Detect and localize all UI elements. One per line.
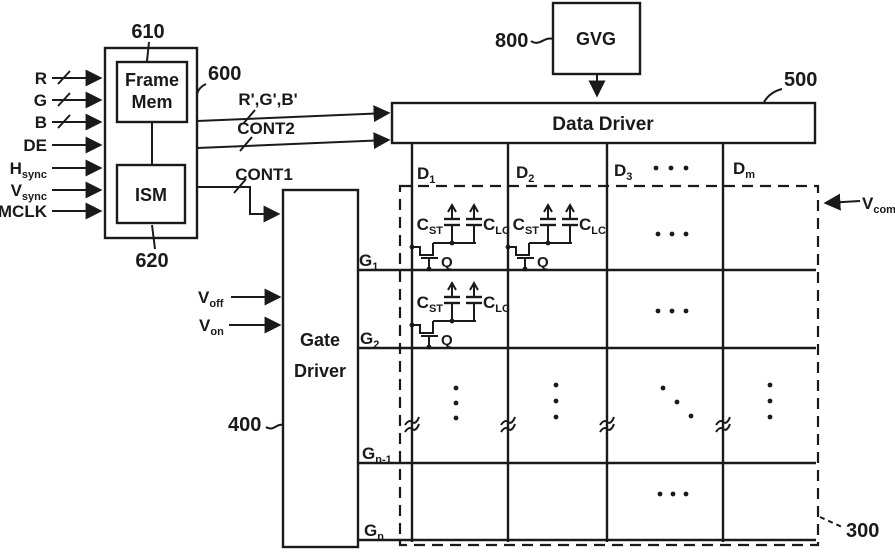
ref-600-leader — [197, 84, 206, 94]
ism-label: ISM — [135, 185, 167, 205]
data-line-label-dm: Dm — [733, 159, 755, 181]
gate-line-label-g2: G2 — [360, 329, 379, 351]
cont2-label: CONT2 — [237, 119, 295, 138]
ref-800-leader — [531, 38, 553, 42]
input-signal-arrows — [52, 71, 100, 211]
signal-label-r: R — [35, 69, 47, 88]
voff-label: Voff — [198, 288, 224, 310]
lc-capacitor — [466, 205, 482, 243]
gate-line-label-g1: G1 — [359, 251, 378, 273]
clc-label: CLC — [483, 293, 510, 315]
von-label: Von — [199, 316, 224, 338]
gate-driver-label-line1: Gate — [300, 330, 340, 350]
signal-label-g: G — [34, 91, 47, 110]
rgb-prime-label: R',G',B' — [238, 90, 297, 109]
panel-border — [400, 186, 818, 545]
data-line-break-marks — [405, 417, 730, 432]
ref-500-leader — [764, 89, 782, 102]
cst-label: CST — [417, 293, 444, 315]
circuit-diagram: R G B DE Hsync Vsync MCLK Frame Mem ISM … — [0, 0, 895, 555]
pixel-cell-2: CST CLC Q — [506, 205, 606, 271]
signal-label-mclk: MCLK — [0, 202, 48, 221]
gvg-label: GVG — [576, 29, 616, 49]
storage-capacitor — [540, 205, 556, 243]
data-driver-label: Data Driver — [552, 114, 654, 135]
clc-label: CLC — [483, 215, 510, 237]
gate-driver-block: Gate Driver 400 Voff Von — [198, 190, 358, 547]
ref-400: 400 — [228, 414, 261, 436]
panel: 300 D1 D2 D3 Dm G1 G2 Gn-1 Gn — [358, 143, 879, 545]
frame-mem-label-line1: Frame — [125, 70, 179, 90]
ref-500: 500 — [784, 69, 817, 91]
gate-line-label-gn: Gn — [364, 521, 384, 543]
gate-driver-label-line2: Driver — [294, 361, 346, 381]
signal-label-vsync: Vsync — [11, 181, 47, 203]
tft-label: Q — [441, 254, 453, 271]
ref-600: 600 — [208, 63, 241, 85]
signal-label-de: DE — [23, 136, 47, 155]
cst-label: CST — [513, 215, 540, 237]
data-line-label-d1: D1 — [417, 164, 435, 186]
frame-mem-label-line2: Mem — [131, 92, 172, 112]
ellipsis-dots — [454, 166, 773, 497]
data-driver-block: Data Driver 500 — [392, 69, 817, 143]
ref-620: 620 — [135, 250, 168, 272]
lc-capacitor — [562, 205, 578, 243]
cont2-bus — [197, 140, 388, 148]
pixel-cell-1: CST CLC Q — [410, 205, 510, 271]
storage-capacitor — [444, 205, 460, 243]
ref-300-leader — [820, 517, 842, 527]
tft-label: Q — [537, 254, 549, 271]
gvg-block: GVG 800 — [495, 3, 640, 95]
vcom-input: Vcom — [826, 194, 895, 216]
patent-figure: R G B DE Hsync Vsync MCLK Frame Mem ISM … — [0, 0, 895, 555]
ref-300: 300 — [846, 520, 879, 542]
ref-400-leader — [266, 425, 283, 429]
cst-label: CST — [417, 215, 444, 237]
data-line-label-d3: D3 — [614, 161, 632, 183]
storage-capacitor — [444, 283, 460, 321]
tft-label: Q — [441, 332, 453, 349]
vcom-label: Vcom — [862, 194, 895, 216]
vcom-arrow — [826, 201, 860, 203]
ref-800: 800 — [495, 30, 528, 52]
input-signal-labels: R G B DE Hsync Vsync MCLK — [0, 69, 48, 221]
cont1-bus — [197, 187, 278, 214]
pixel-cell-3: CST CLC Q — [410, 283, 510, 349]
clc-label: CLC — [579, 215, 606, 237]
ref-610: 610 — [131, 21, 164, 43]
signal-label-hsync: Hsync — [10, 159, 47, 181]
data-lines — [412, 143, 723, 542]
signal-label-b: B — [35, 113, 47, 132]
gate-line-label-gn-1: Gn-1 — [362, 444, 392, 466]
lc-capacitor — [466, 283, 482, 321]
data-line-label-d2: D2 — [516, 163, 534, 185]
